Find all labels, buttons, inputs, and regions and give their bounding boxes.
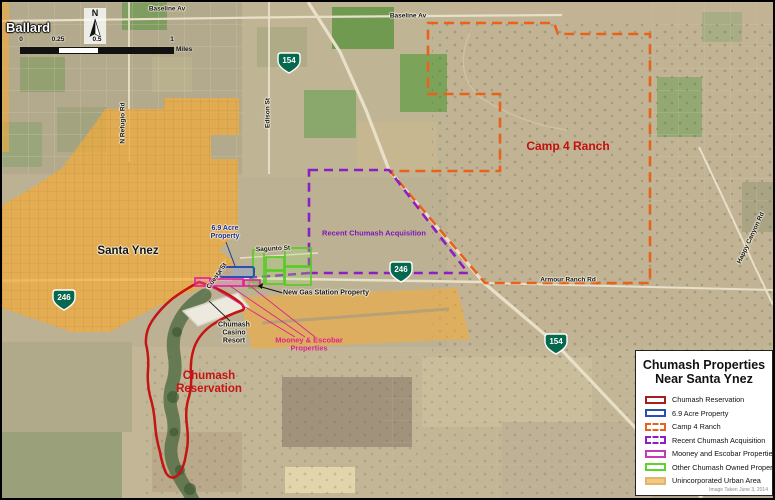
legend-item: 6.9 Acre Property [645, 406, 772, 420]
area-label-gas-station: New Gas Station Property [283, 290, 369, 297]
area-label-reservation: Chumash Reservation [167, 370, 251, 396]
town-label-santa-ynez: Santa Ynez [97, 245, 158, 257]
highway-shield-label: 154 [277, 56, 301, 65]
map-figure: Ballard Santa Ynez Camp 4 Ranch Recent C… [0, 0, 775, 500]
image-credit: Image Taken June 3, 2014 [709, 487, 768, 493]
scale-bar-segments [20, 47, 174, 54]
legend-item: Unincorporated Urban Area [645, 474, 772, 488]
legend-swatch-other-owned [645, 463, 666, 471]
oak-tree-speckle [432, 22, 773, 357]
area-label-acquisition: Recent Chumash Acquisition [322, 229, 426, 238]
legend-title-line2: Near Santa Ynez [636, 372, 772, 386]
legend-item-label: Mooney and Escobar Properties [672, 449, 773, 458]
area-label-casino: Chumash Casino Resort [211, 321, 257, 344]
scale-unit-label: Miles [176, 46, 192, 53]
legend-swatch-urban-area [645, 477, 666, 485]
north-label: N [84, 8, 106, 19]
area-label-camp4: Camp 4 Ranch [526, 139, 609, 153]
highway-shield-154-south: 154 [544, 333, 568, 355]
legend-item-label: Recent Chumash Acquisition [672, 436, 765, 445]
scale-tick: 0 [19, 36, 23, 43]
highway-shield-label: 154 [544, 337, 568, 346]
highway-shield-label: 246 [52, 293, 76, 302]
legend-swatch-camp4 [645, 423, 666, 431]
mooney-escobar-parcels [195, 278, 260, 286]
legend-item: Other Chumash Owned Property [645, 460, 772, 474]
legend-swatch-acre-property [645, 409, 666, 417]
legend-item-label: Other Chumash Owned Property [672, 463, 773, 472]
map-legend: Chumash Properties Near Santa Ynez Chuma… [635, 350, 773, 496]
legend-item-label: 6.9 Acre Property [672, 409, 728, 418]
legend-title-line1: Chumash Properties [636, 358, 772, 372]
legend-items: Chumash Reservation 6.9 Acre Property Ca… [645, 393, 772, 488]
legend-item-label: Chumash Reservation [672, 395, 744, 404]
legend-item: Recent Chumash Acquisition [645, 433, 772, 447]
highway-shield-154-north: 154 [277, 52, 301, 74]
legend-title: Chumash Properties Near Santa Ynez [636, 358, 772, 387]
road-label-baseline-av-west: Baseline Av [149, 6, 185, 13]
legend-item: Chumash Reservation [645, 393, 772, 407]
road-label-armour-ranch-rd: Armour Ranch Rd [540, 277, 596, 284]
highway-shield-246-east: 246 [389, 261, 413, 283]
legend-swatch-acquisition [645, 436, 666, 444]
road-label-n-refugio-rd: N Refugio Rd [120, 102, 127, 143]
satellite-map: Ballard Santa Ynez Camp 4 Ranch Recent C… [2, 2, 773, 498]
road-label-baseline-av-east: Baseline Av [390, 13, 426, 20]
town-label-ballard: Ballard [6, 20, 50, 35]
legend-item: Mooney and Escobar Properties [645, 447, 772, 461]
legend-swatch-mooney [645, 450, 666, 458]
road-label-edison-st: Edison St [265, 98, 272, 128]
legend-item-label: Camp 4 Ranch [672, 422, 721, 431]
legend-item-label: Unincorporated Urban Area [672, 476, 761, 485]
scale-tick: 1 [170, 36, 174, 43]
legend-item: Camp 4 Ranch [645, 420, 772, 434]
scale-bar: 0 0.25 0.5 1 Miles [18, 36, 198, 60]
area-label-mooney: Mooney & Escobar Properties [265, 337, 353, 354]
highway-shield-label: 246 [389, 265, 413, 274]
scale-tick: 0.5 [92, 36, 101, 43]
legend-swatch-reservation [645, 396, 666, 404]
highway-shield-246-west: 246 [52, 289, 76, 311]
scale-tick: 0.25 [52, 36, 65, 43]
area-label-acre-property: 6.9 Acre Property [201, 225, 249, 241]
